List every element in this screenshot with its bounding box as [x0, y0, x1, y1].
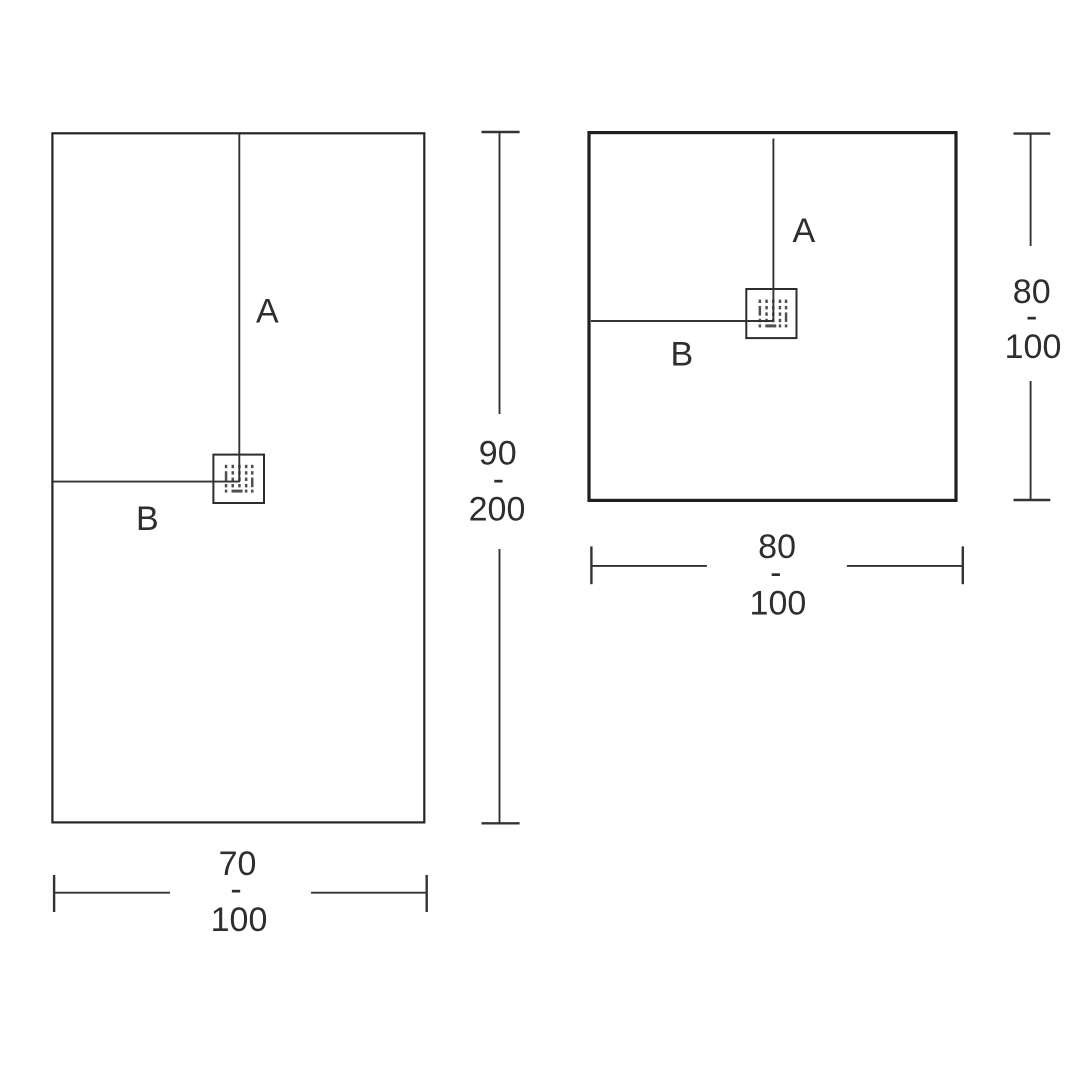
svg-text:B: B [136, 500, 159, 538]
svg-text:200: 200 [469, 491, 526, 529]
svg-text:100: 100 [1005, 328, 1062, 366]
svg-text:A: A [793, 212, 816, 250]
svg-text:100: 100 [750, 585, 807, 623]
svg-text:A: A [256, 292, 279, 330]
svg-text:B: B [671, 336, 694, 374]
svg-text:100: 100 [211, 901, 268, 939]
